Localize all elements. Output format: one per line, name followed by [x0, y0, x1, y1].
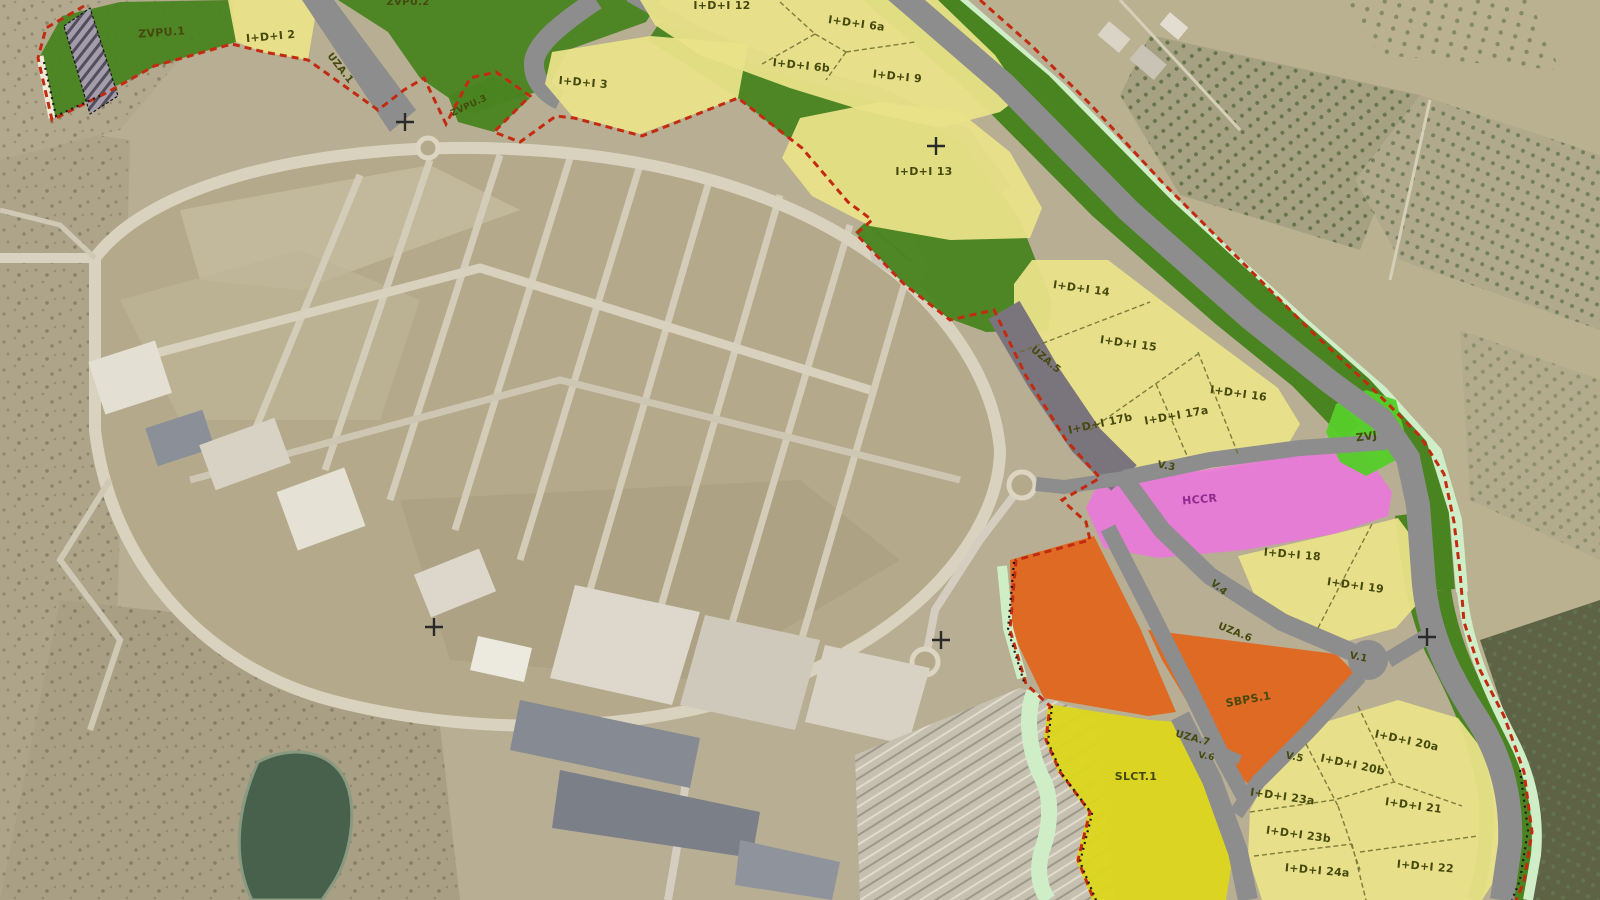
- road-stub-roundabout: [1036, 478, 1124, 487]
- label-slct-1: SLCT.1: [1115, 770, 1157, 783]
- pond: [239, 752, 352, 900]
- label-idi-12: I+D+I 12: [693, 0, 750, 12]
- roundabout-north: [418, 138, 438, 158]
- zoning-map-svg: ZVPU.2 ZVPU.1 I+D+I 2 UZA.1 ZVPU.3 I+D+I…: [0, 0, 1600, 900]
- zoning-map-canvas[interactable]: ZVPU.2 ZVPU.1 I+D+I 2 UZA.1 ZVPU.3 I+D+I…: [0, 0, 1600, 900]
- roundabout-east: [1009, 472, 1035, 498]
- label-idi-13: I+D+I 13: [895, 165, 952, 178]
- label-zvpu-2: ZVPU.2: [387, 0, 430, 8]
